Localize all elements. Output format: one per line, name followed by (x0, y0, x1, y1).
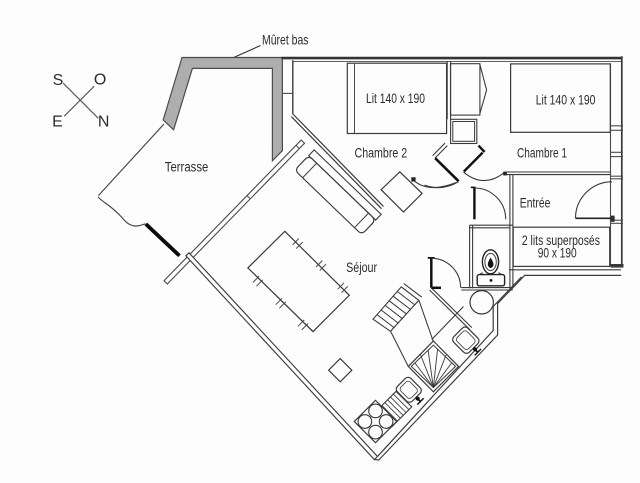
svg-text:Mûret bas: Mûret bas (262, 31, 309, 47)
svg-text:O: O (94, 71, 106, 88)
svg-text:Séjour: Séjour (346, 259, 377, 275)
svg-text:Terrasse: Terrasse (165, 159, 209, 175)
svg-text:90 x 190: 90 x 190 (538, 245, 577, 261)
svg-text:Entrée: Entrée (520, 194, 551, 210)
svg-text:Lit 140 x 190: Lit 140 x 190 (536, 92, 596, 108)
svg-text:S: S (53, 72, 64, 89)
svg-text:E: E (52, 114, 63, 131)
svg-text:Chambre 2: Chambre 2 (355, 145, 408, 161)
svg-text:N: N (98, 113, 110, 130)
svg-text:Lit 140 x 190: Lit 140 x 190 (366, 90, 425, 106)
svg-text:Chambre 1: Chambre 1 (517, 145, 567, 161)
